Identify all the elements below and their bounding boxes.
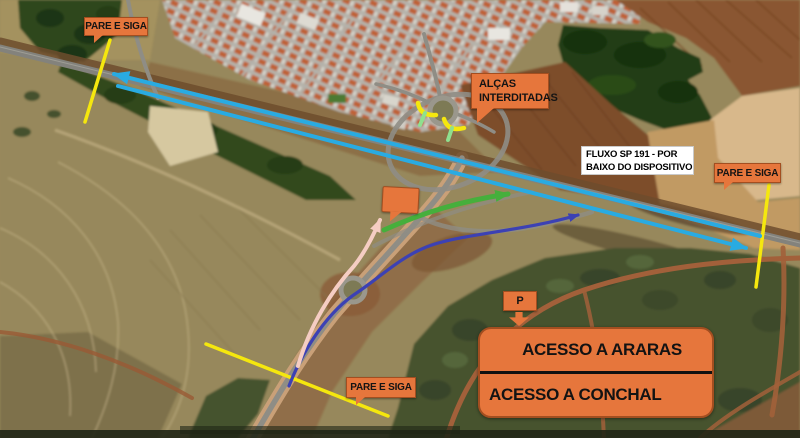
stop-and-go-label: PARE E SIGA	[85, 21, 147, 32]
stop-and-go-callout-top-left: PARE E SIGA	[84, 17, 148, 36]
ramps-closed-callout: ALÇAS INTERDITADAS	[471, 73, 549, 109]
flow-info-box: FLUXO SP 191 - POR BAIXO DO DISPOSITIVO	[581, 146, 694, 175]
p-marker-callout: P	[503, 291, 537, 311]
flow-info-line1: FLUXO SP 191 - POR	[586, 149, 689, 162]
ramps-closed-line2: INTERDITADAS	[479, 91, 558, 105]
ramps-closed-line1: ALÇAS	[479, 77, 516, 91]
access-conchal-row: ACESSO A CONCHAL	[480, 374, 712, 416]
access-conchal-label: ACESSO A CONCHAL	[489, 385, 661, 405]
satellite-traffic-plan: PARE E SIGA ALÇAS INTERDITADAS FLUXO SP …	[0, 0, 800, 438]
p-marker-label: P	[516, 295, 523, 307]
stop-and-go-callout-right: PARE E SIGA	[714, 163, 781, 183]
stop-and-go-label: PARE E SIGA	[717, 168, 779, 179]
flow-info-line2: BAIXO DO DISPOSITIVO	[586, 162, 689, 175]
access-panel: ACESSO A ARARAS ACESSO A CONCHAL	[478, 327, 714, 418]
device-callout-marker	[381, 186, 419, 214]
access-araras-row: ACESSO A ARARAS	[480, 329, 712, 371]
stop-and-go-label: PARE E SIGA	[350, 382, 412, 393]
stop-and-go-callout-bottom: PARE E SIGA	[346, 377, 416, 398]
access-araras-label: ACESSO A ARARAS	[522, 340, 682, 360]
